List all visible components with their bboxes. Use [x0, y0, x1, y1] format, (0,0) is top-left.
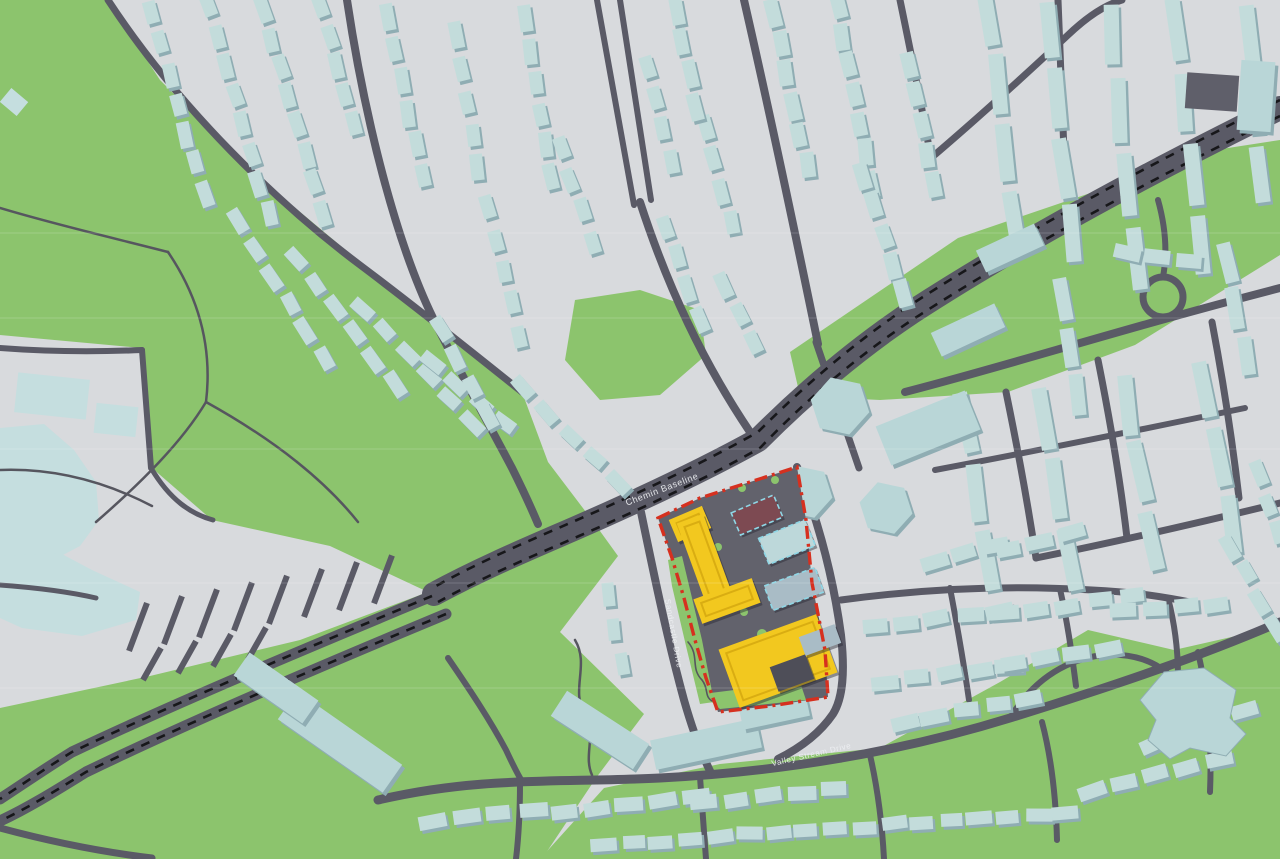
map-viewport[interactable]: Chemin Baseline Sandcastle Drive Valley … [0, 0, 1280, 859]
city-map-canvas[interactable]: Chemin Baseline Sandcastle Drive Valley … [0, 0, 1280, 859]
